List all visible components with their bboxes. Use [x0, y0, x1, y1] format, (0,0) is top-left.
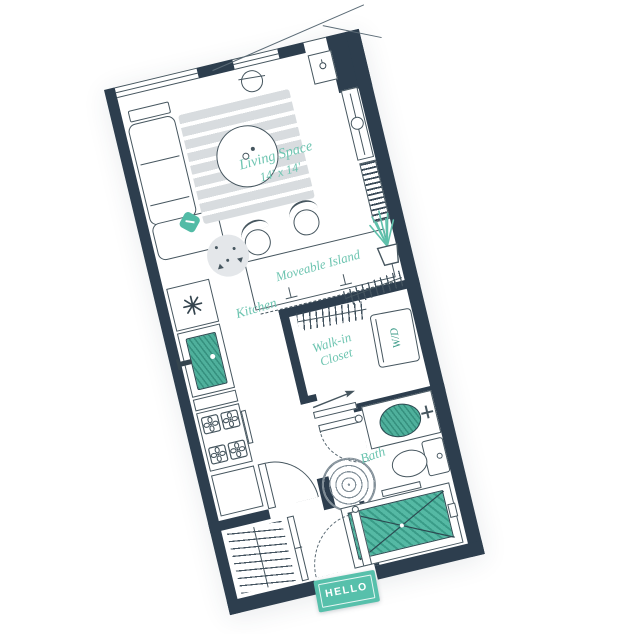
table-triangle-mark [217, 263, 224, 269]
panel-glyph-stem [321, 59, 323, 63]
vanity-sink [376, 400, 425, 442]
burner-icon [220, 409, 242, 431]
ceiling-light [239, 68, 266, 95]
sofa-cushion-seam [140, 155, 179, 165]
floorplan: Living Space 14' x 14' Moveable Island [104, 29, 485, 615]
floorplan-page: Living Space 14' x 14' Moveable Island [0, 0, 634, 634]
leg-post [343, 274, 347, 284]
top-wall-segment [277, 42, 306, 59]
disposal-asterisk-icon [181, 293, 205, 317]
window-glass-line [116, 72, 198, 93]
table-decor-dot [250, 146, 255, 151]
wd-door-line [375, 319, 384, 362]
pillow-mark [185, 220, 194, 223]
refrigerator [211, 465, 264, 516]
leg-base [340, 282, 352, 286]
washer-dryer-label: W/D [387, 322, 405, 354]
closet-rod-line [297, 309, 366, 323]
counter-section [166, 279, 219, 332]
burner-icon [200, 413, 222, 435]
entry-closet-clothes [227, 520, 296, 593]
window-top-1 [115, 68, 199, 98]
toilet-flush-button [436, 452, 443, 459]
light-chord-line [238, 75, 265, 81]
table-speck [226, 259, 230, 263]
table-triangle-mark [237, 257, 244, 263]
entry-closet-rod [253, 527, 269, 588]
sliding-door-split [295, 546, 302, 549]
tv-speaker-circle [349, 115, 365, 131]
kitchen-door-swing-arc [265, 452, 319, 507]
table-speck [232, 247, 236, 251]
island-leg [337, 273, 354, 289]
burner-icon [207, 444, 229, 466]
door-hinge [351, 505, 359, 513]
walk-in-closet-label: Walk-in Closet [294, 325, 373, 375]
sofa-cushion-seam [150, 196, 189, 206]
burner-icon [227, 439, 249, 461]
table-speck [215, 246, 219, 250]
